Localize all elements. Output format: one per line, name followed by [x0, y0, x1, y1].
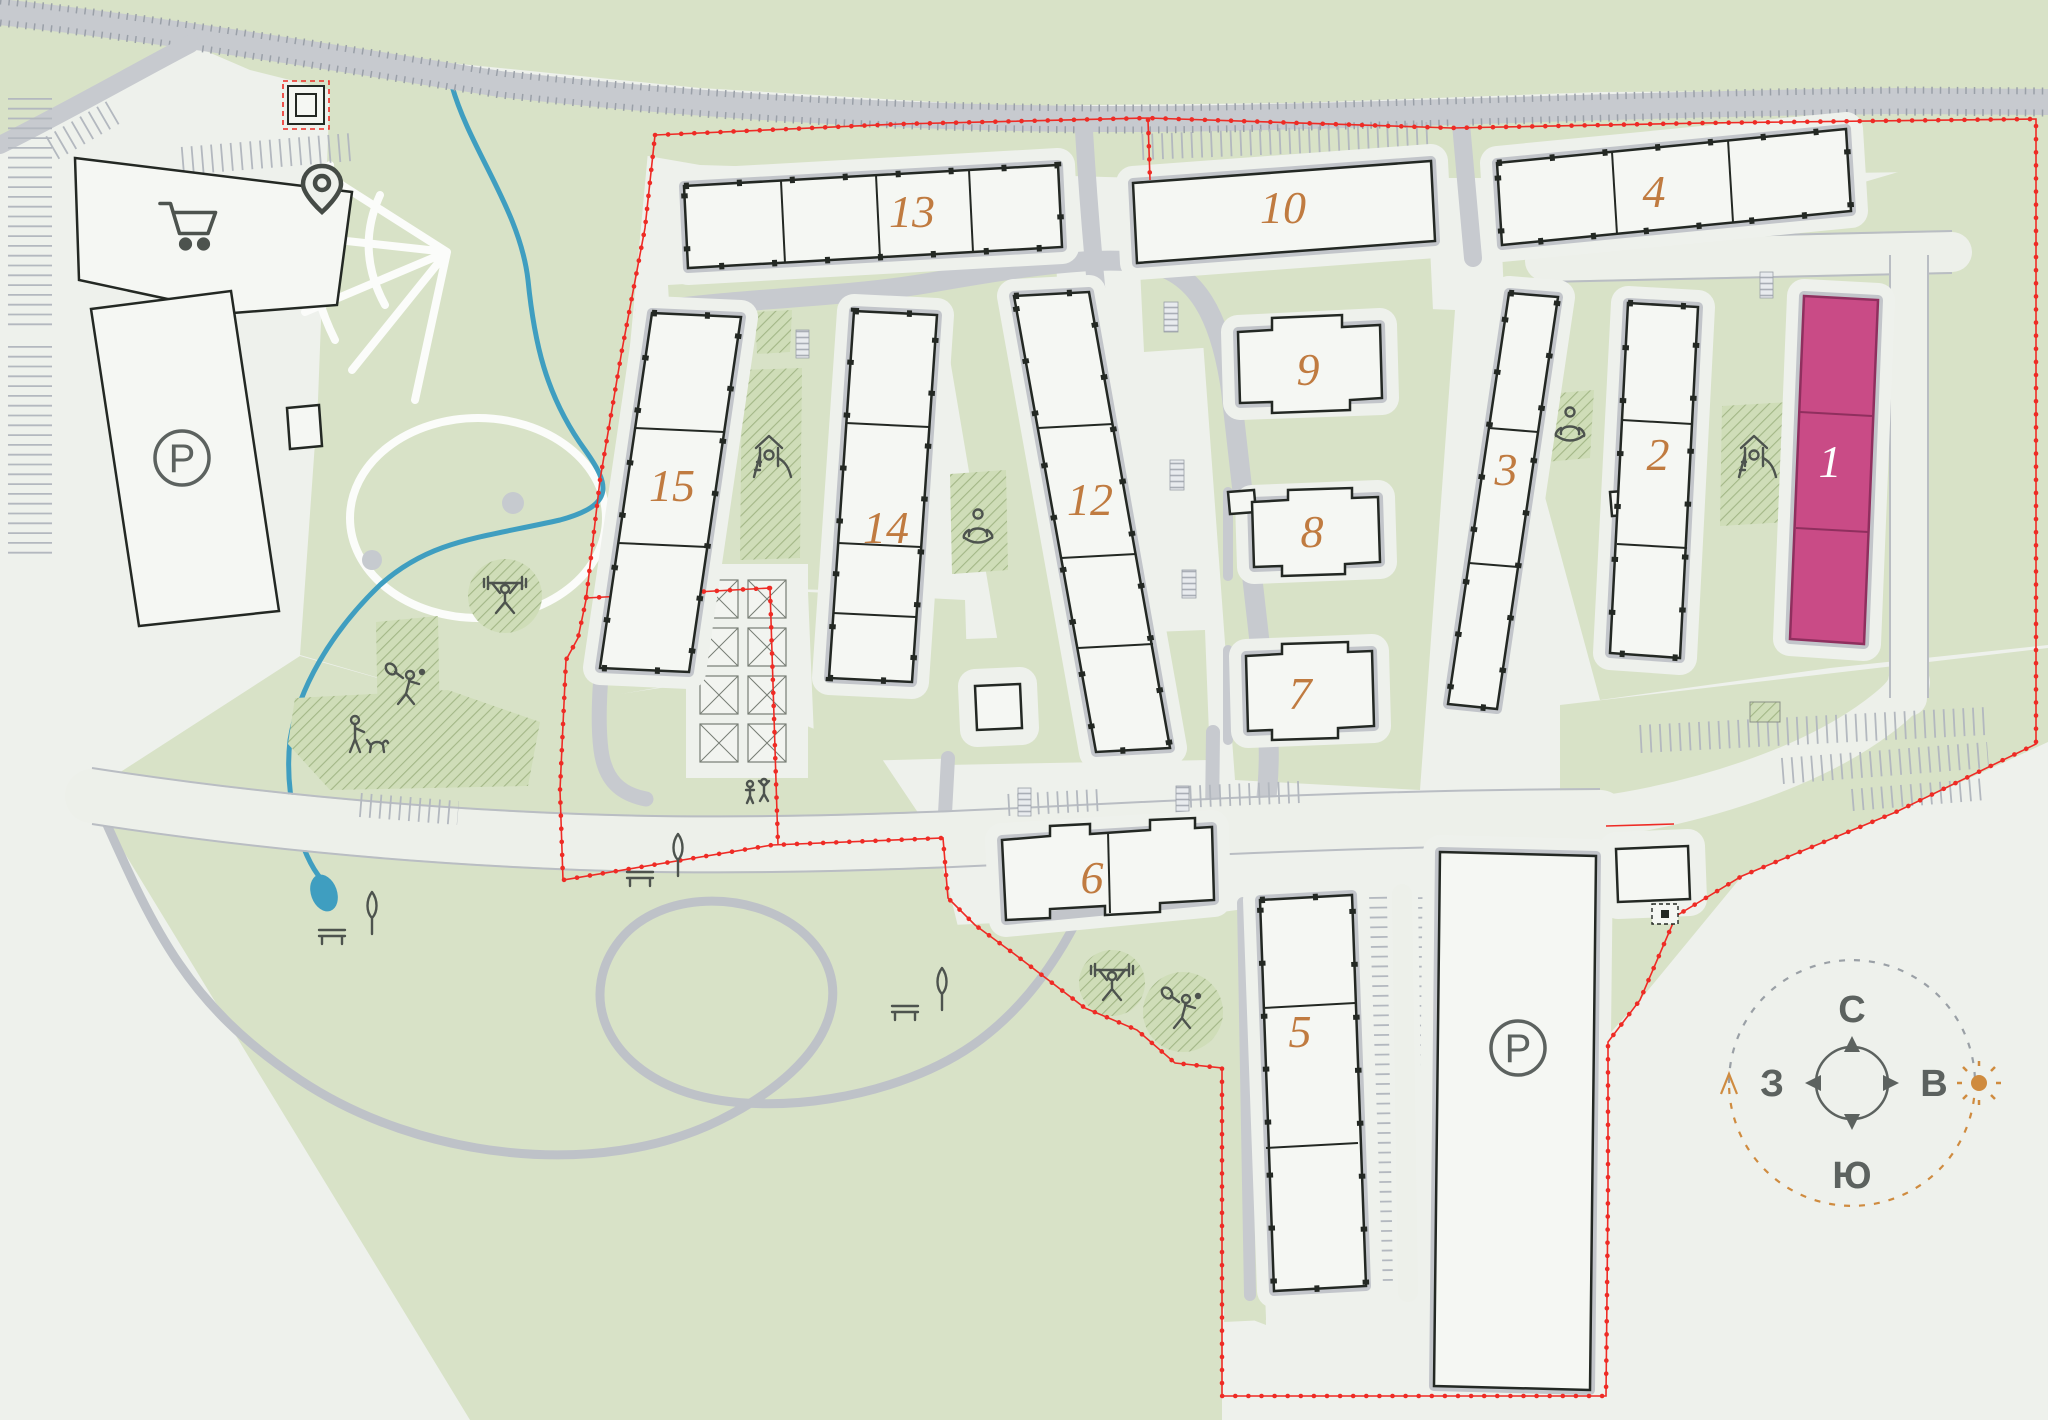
utility-marker: [1652, 904, 1678, 924]
building-2-label: 2: [1647, 429, 1670, 480]
building-1[interactable]: 1: [1790, 296, 1878, 644]
building-9[interactable]: 9: [1238, 315, 1382, 413]
building-15-label: 15: [649, 460, 695, 511]
mall-parking-garage[interactable]: P: [91, 291, 279, 626]
compass-north-label: С: [1838, 989, 1865, 1031]
building-6-label: 6: [1081, 852, 1104, 903]
building-4-label: 4: [1643, 166, 1666, 217]
building-8[interactable]: 8: [1252, 488, 1380, 576]
masterplan-canvas: P P 13 10: [0, 0, 2048, 1420]
building-9-label: 9: [1297, 344, 1320, 395]
compass-east-label: В: [1920, 1063, 1947, 1105]
building-13-label: 13: [889, 186, 935, 237]
building-3-label: 3: [1494, 444, 1518, 495]
checkpoint: [283, 81, 329, 129]
building-10-label: 10: [1260, 182, 1306, 233]
parking-label: P: [169, 437, 196, 481]
building-5[interactable]: 5: [1260, 895, 1366, 1291]
parking-label: P: [1505, 1027, 1532, 1071]
compass: С Ю З В: [1721, 960, 2001, 1206]
compass-west-label: З: [1760, 1063, 1784, 1105]
building-12-label: 12: [1067, 474, 1113, 525]
sun-icon: [1957, 1061, 2001, 1105]
compass-south-label: Ю: [1832, 1155, 1871, 1197]
building-5-label: 5: [1289, 1006, 1312, 1057]
building-14-label: 14: [863, 502, 909, 553]
masterplan-svg: P P 13 10: [0, 0, 2048, 1420]
building-8-label: 8: [1301, 506, 1324, 557]
building-7[interactable]: 7: [1246, 642, 1374, 740]
building-1-label: 1: [1819, 436, 1842, 487]
building-7-label: 7: [1289, 668, 1314, 719]
south-parking-garage[interactable]: P: [1434, 852, 1596, 1390]
